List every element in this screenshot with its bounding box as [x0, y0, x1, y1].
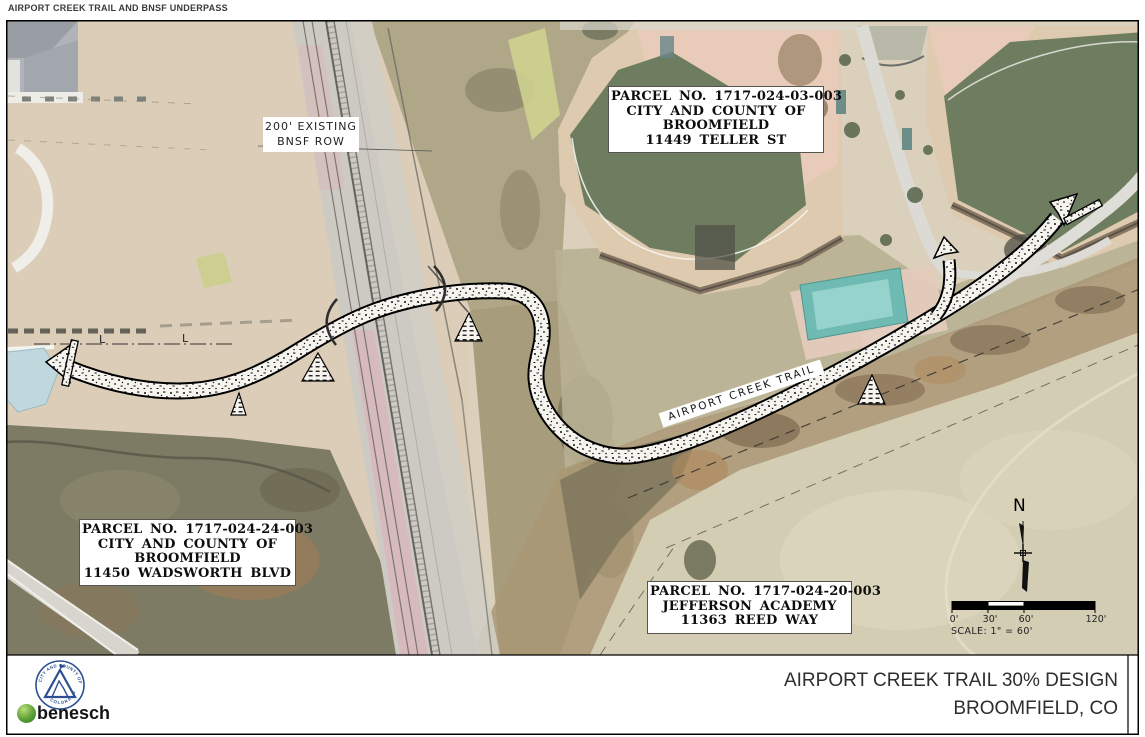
parcel-owner: CITY AND COUNTY OF: [82, 538, 293, 553]
parcel-label-reed: PARCEL NO. 1717-024-20-003 JEFFERSON ACA…: [647, 581, 852, 634]
benesch-wordmark: benesch: [37, 703, 110, 724]
benesch-globe-icon: [17, 704, 36, 723]
project-title: AIRPORT CREEK TRAIL 30% DESIGN: [784, 667, 1118, 695]
title-block: AIRPORT CREEK TRAIL 30% DESIGN BROOMFIEL…: [784, 667, 1118, 722]
parcel-address: 11363 REED WAY: [650, 614, 849, 629]
parcel-owner: JEFFERSON ACADEMY: [650, 600, 849, 615]
section-marker-l2: L: [182, 332, 188, 345]
bnsf-row-label-line2: BNSF ROW: [263, 134, 359, 149]
section-marker-l1: L: [99, 333, 105, 346]
project-location: BROOMFIELD, CO: [784, 695, 1118, 723]
parcel-owner: CITY AND COUNTY OF: [611, 105, 821, 120]
bnsf-row-label-line1: 200' EXISTING: [263, 119, 359, 134]
parcel-owner2: BROOMFIELD: [82, 552, 293, 567]
scale-tick-60: 60': [1019, 614, 1034, 625]
parcel-number: PARCEL NO. 1717-024-20-003: [650, 585, 849, 600]
parcel-number: PARCEL NO. 1717-024-24-003: [82, 523, 293, 538]
parcel-label-wadsworth: PARCEL NO. 1717-024-24-003 CITY AND COUN…: [79, 519, 296, 586]
scale-tick-120: 120': [1086, 614, 1107, 625]
benesch-logo: benesch: [17, 703, 110, 724]
plan-sheet: AIRPORT CREEK TRAIL AND BNSF UNDERPASS: [0, 0, 1145, 737]
parcel-owner2: BROOMFIELD: [611, 119, 821, 134]
parcel-address: 11450 WADSWORTH BLVD: [82, 567, 293, 582]
north-label: N: [1013, 496, 1026, 516]
scale-tick-30: 30': [983, 614, 998, 625]
parcel-label-teller: PARCEL NO. 1717-024-03-003 CITY AND COUN…: [608, 86, 824, 153]
scale-caption: SCALE: 1" = 60': [951, 626, 1033, 637]
parcel-number: PARCEL NO. 1717-024-03-003: [611, 90, 821, 105]
bnsf-row-label: 200' EXISTING BNSF ROW: [263, 117, 359, 152]
parcel-address: 11449 TELLER ST: [611, 134, 821, 149]
scale-tick-0: 0': [950, 614, 959, 625]
